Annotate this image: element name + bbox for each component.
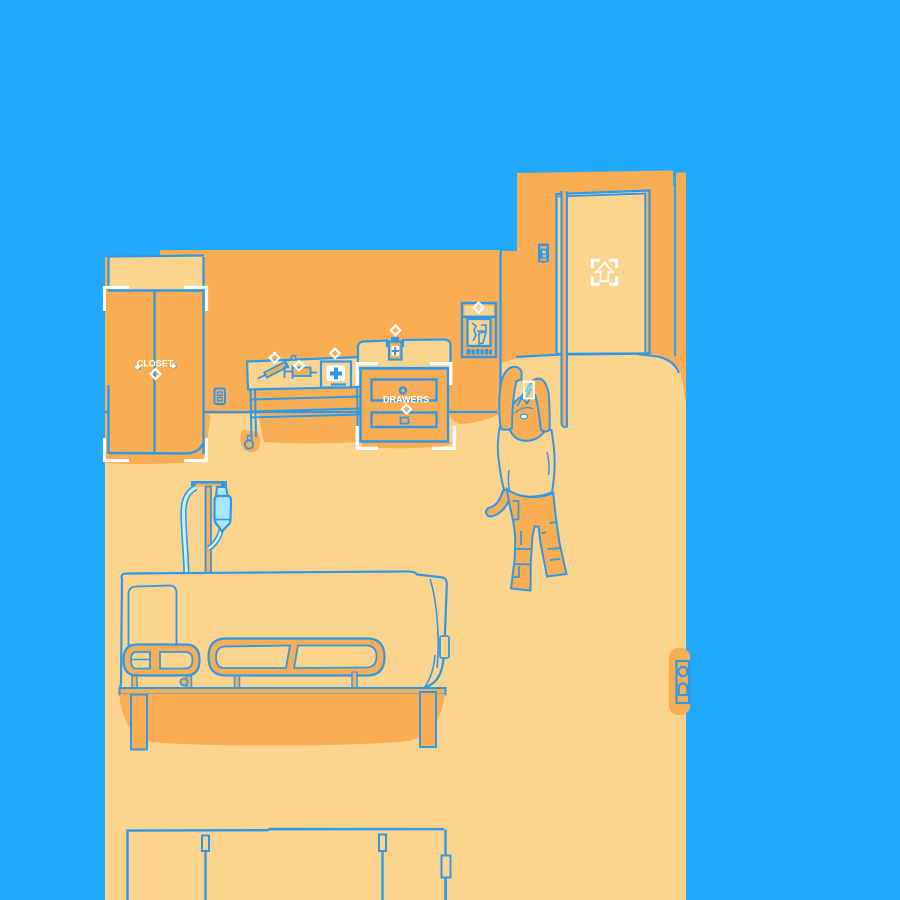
svg-text:CLOSET: CLOSET [137, 359, 174, 369]
svg-text:DRAWERS: DRAWERS [383, 395, 429, 405]
